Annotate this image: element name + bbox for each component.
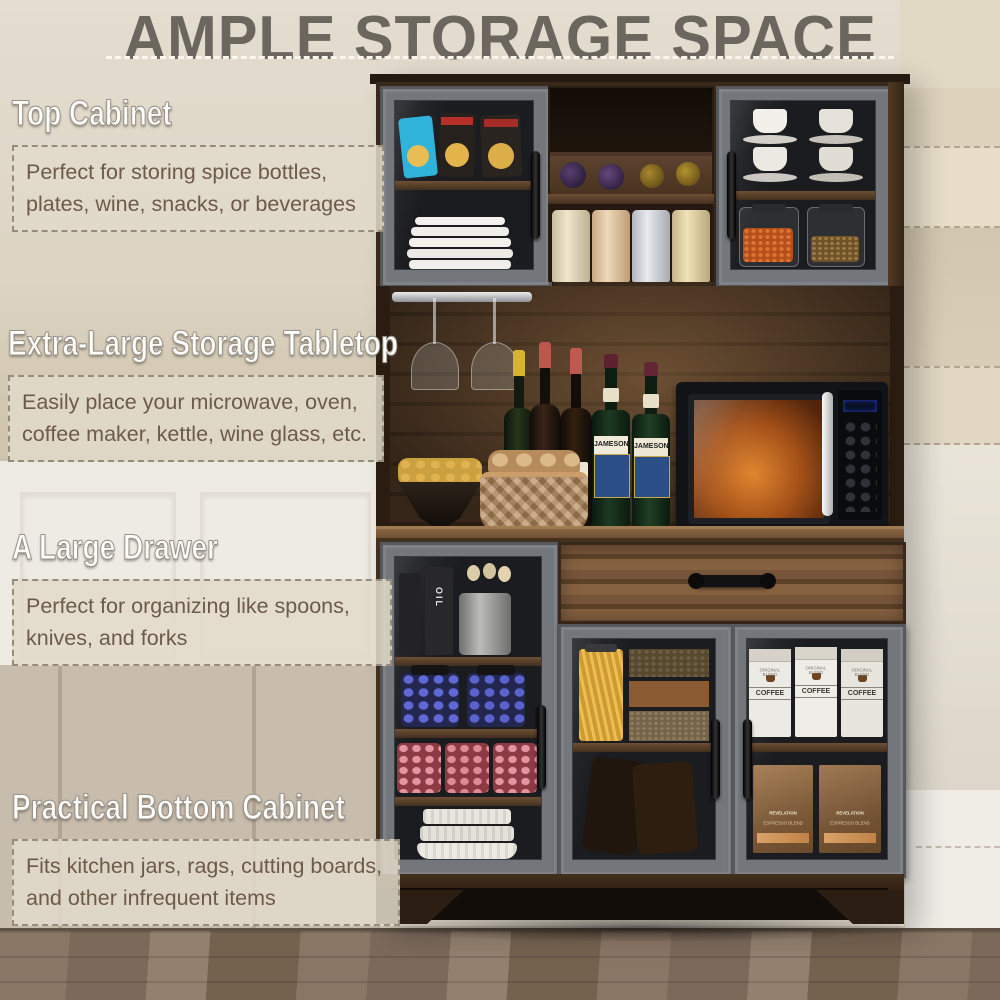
coffee-bag: ORIGINAL BLEND COFFEE (749, 649, 791, 737)
cup-stack (809, 109, 863, 189)
open-storage-area: JAMESON JAMESON (376, 286, 904, 542)
utensil-crock (459, 593, 511, 655)
chip-bag-dark-banner (484, 119, 518, 127)
plate (409, 238, 511, 247)
wicker-basket (480, 472, 588, 533)
top-left-door-glass (394, 100, 534, 270)
cabinet-plinth (376, 874, 904, 926)
chip-bag-blue-chips (407, 145, 429, 167)
coffee-brand-text: ORIGINAL BLEND (847, 669, 877, 678)
grain-box (629, 681, 709, 707)
grain-box (629, 711, 709, 741)
box-band (824, 833, 876, 843)
plinth-shadow (392, 888, 888, 920)
top-right-door-glass (730, 100, 876, 270)
product-infographic: AMPLE STORAGE SPACE (0, 0, 1000, 1000)
microwave (676, 382, 888, 528)
wall-right-band (900, 148, 1000, 226)
plate (409, 260, 511, 269)
coffee-brand-text: ORIGINAL BLEND (755, 669, 785, 678)
box-band (757, 833, 809, 843)
plate (407, 249, 513, 258)
stitch-line (916, 846, 1000, 848)
title-underline (106, 56, 894, 59)
candy-jar-blue (467, 673, 525, 727)
spoon-head (483, 563, 496, 579)
door-handle (531, 151, 540, 239)
shelf (573, 743, 715, 752)
cup (819, 109, 853, 133)
bag-flap (841, 649, 883, 662)
bottom-middle-door-glass (572, 638, 716, 860)
microwave-handle (822, 392, 833, 516)
bottom-right-door: ORIGINAL BLEND COFFEE ORIGINAL BLEND COF… (732, 624, 906, 878)
feature-description: Perfect for organizing like spoons, kniv… (12, 579, 392, 666)
feature-heading: A Large Drawer (12, 530, 316, 565)
canister-row (550, 204, 712, 282)
page-title: AMPLE STORAGE SPACE (20, 8, 980, 70)
cup (819, 147, 853, 171)
shelf (548, 194, 714, 204)
bowl (420, 826, 514, 841)
utensil-spoons (465, 563, 511, 595)
spoon-head (498, 566, 511, 582)
feature-section-drawer: A Large Drawer Perfect for organizing li… (12, 530, 392, 666)
microwave-window (688, 394, 830, 524)
bottle-neck (514, 376, 524, 412)
wall-right-band (900, 88, 1000, 146)
bottle-cap (570, 348, 582, 376)
whiskey-bottle: JAMESON (592, 354, 630, 526)
grain-box (629, 649, 709, 677)
bowl (423, 809, 511, 824)
feature-section-tabletop: Extra-Large Storage Tabletop Easily plac… (8, 326, 388, 462)
wine-bottle-end (598, 164, 624, 190)
whiskey-label-band: JAMESON (634, 438, 668, 456)
microwave-control-panel (838, 390, 882, 520)
feature-section-bottom-cabinet: Practical Bottom Cabinet Fits kitchen ja… (12, 790, 402, 926)
whiskey-label-blue (594, 454, 630, 498)
chip-bag-dark-chips (445, 143, 469, 167)
bag-flap (795, 647, 837, 660)
jar-lid (819, 204, 853, 213)
canister (592, 210, 630, 282)
oil-bottle-label: OIL (434, 587, 444, 608)
wine-bottle-end (640, 164, 664, 188)
coffee-brand-text: ORIGINAL BLEND (801, 667, 831, 676)
chip-bag-dark-chips (488, 143, 514, 169)
door-handle (743, 719, 752, 799)
saucer (743, 135, 797, 144)
wall-right-light (900, 445, 1000, 790)
top-right-door (716, 86, 894, 288)
open-cubby (550, 88, 712, 156)
plate-stack (407, 217, 513, 269)
plate (411, 227, 509, 236)
bowl-stack (417, 809, 517, 859)
bottom-middle-door (558, 624, 734, 878)
top-left-door (380, 86, 552, 288)
candy-jar-pink (397, 743, 441, 793)
canister (552, 210, 590, 282)
coffee-bag: ORIGINAL BLEND COFFEE (841, 649, 883, 737)
microwave-display (843, 400, 877, 412)
cup-stack (743, 109, 797, 189)
door-handle (727, 151, 736, 239)
wine-glass (410, 298, 458, 390)
oil-bottle: OIL (425, 567, 453, 655)
bowl (417, 843, 517, 859)
espresso-sub-label: ESPRESSO BLEND (828, 822, 873, 826)
glass-stem (433, 298, 436, 344)
whiskey-label-band: JAMESON (594, 436, 628, 454)
espresso-box: REVELATION ESPRESSO BLEND (753, 765, 813, 853)
coffee-bag: ORIGINAL BLEND COFFEE (795, 647, 837, 737)
feature-heading: Extra-Large Storage Tabletop (8, 326, 312, 361)
hutch-right-edge (888, 82, 904, 286)
saucer (809, 135, 863, 144)
bottle-neck (540, 368, 550, 408)
shelf (747, 743, 887, 752)
wine-bottle-end (560, 162, 586, 188)
jar-contents (811, 236, 859, 262)
shelf (395, 729, 541, 738)
handle-knob (760, 573, 776, 589)
top-hutch (376, 82, 904, 286)
handle-knob (688, 573, 704, 589)
feature-description: Perfect for storing spice bottles, plate… (12, 145, 384, 232)
cup (753, 109, 787, 133)
coffee-label-text: COFFEE (795, 685, 837, 698)
espresso-label: REVELATION (828, 812, 873, 816)
shelf (395, 181, 533, 190)
wine-bottle-end (676, 162, 700, 186)
pasta-jar (579, 649, 623, 741)
coffee-label-text: COFFEE (749, 687, 791, 700)
espresso-label: REVELATION (761, 812, 804, 816)
top-middle-section (548, 86, 714, 282)
plate (415, 217, 505, 225)
neck-label (603, 388, 619, 402)
cutting-board (632, 761, 698, 855)
bottle-neck (571, 374, 581, 412)
bottle-cap (513, 350, 525, 378)
chip-bag-dark-banner (441, 117, 473, 125)
title-block: AMPLE STORAGE SPACE (0, 8, 1000, 70)
glass-bowl (411, 342, 459, 390)
microwave-buttons (843, 420, 877, 512)
door-handle (711, 719, 720, 799)
glass-stem (493, 298, 496, 344)
saucer (743, 173, 797, 182)
bottom-left-door-glass: OIL (394, 556, 542, 860)
bottom-cabinet: OIL (376, 538, 904, 874)
shelf (395, 797, 541, 806)
feature-description: Easily place your microwave, oven, coffe… (8, 375, 384, 462)
shelf (731, 191, 875, 200)
saucer (809, 173, 863, 182)
wall-right-door-panel (905, 790, 1000, 930)
feature-heading: Top Cabinet (12, 96, 316, 131)
jar-lid (411, 665, 449, 675)
jar-brown-grains (807, 207, 865, 267)
espresso-sub-label: ESPRESSO BLEND (761, 822, 804, 826)
whiskey-bottle: JAMESON (632, 362, 670, 526)
candy-jar-pink (493, 743, 537, 793)
jar-orange-lentils (739, 207, 799, 267)
espresso-box: REVELATION ESPRESSO BLEND (819, 765, 881, 853)
dark-canister (399, 573, 421, 655)
coffee-label-text: COFFEE (841, 687, 883, 700)
jar-lid (585, 644, 617, 652)
snack-pieces (398, 458, 482, 486)
bottom-right-door-glass: ORIGINAL BLEND COFFEE ORIGINAL BLEND COF… (746, 638, 888, 860)
feature-section-top-cabinet: Top Cabinet Perfect for storing spice bo… (12, 96, 392, 232)
bottle-cap (539, 342, 551, 370)
cabinet: JAMESON JAMESON (376, 74, 904, 926)
canister (672, 210, 710, 282)
door-handle (537, 705, 546, 789)
candy-jar-pink (445, 743, 489, 793)
neck-label (643, 394, 659, 408)
feature-heading: Practical Bottom Cabinet (12, 790, 324, 825)
jar-lid (477, 665, 515, 675)
spoon-head (467, 565, 480, 581)
wine-rack (550, 156, 712, 194)
feature-description: Fits kitchen jars, rags, cutting boards,… (12, 839, 400, 926)
bottom-left-door: OIL (380, 542, 560, 878)
jar-contents (743, 228, 793, 262)
canister (632, 210, 670, 282)
wall-right-band (900, 368, 1000, 443)
whiskey-label-blue (634, 456, 670, 498)
drawer-handle (693, 575, 771, 587)
candy-jar-blue (401, 673, 459, 727)
cup (753, 147, 787, 171)
large-drawer (558, 542, 906, 624)
wall-right-band (900, 228, 1000, 366)
jar-lid (752, 204, 786, 213)
bag-flap (749, 649, 791, 662)
